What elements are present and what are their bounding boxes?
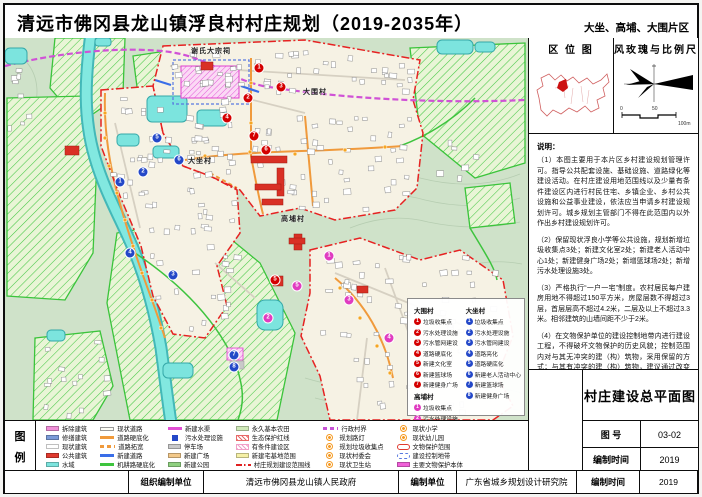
sidebar: 区 位 图 风玫瑰与比例尺: [528, 38, 698, 470]
legend-label: 新建广场: [184, 451, 209, 460]
legend-item: 现状小学: [397, 424, 463, 433]
svg-text:100m: 100m: [678, 121, 691, 127]
village-label-gaobu: 高埔村: [281, 214, 305, 224]
legend-title: 图 例: [5, 421, 36, 471]
map-key-item: 1垃圾收集点: [414, 317, 460, 326]
map-key-number-badge: 7: [466, 381, 473, 388]
map-key-item: 6新建篮球场: [414, 370, 460, 379]
footer-bar: 组织编制单位 清远市佛冈县龙山镇人民政府 编制单位 广东省城乡规划设计研究院 编…: [5, 470, 697, 493]
drawing-name: 村庄建设总平面图: [582, 370, 698, 420]
legend-swatch: [236, 435, 249, 441]
legend-label: 文物保护范围: [413, 442, 451, 451]
map-key-item: 1垃圾收集点: [414, 403, 460, 412]
map-area: 谢氏大宗祠 大围村 大坐村 高埔村 12345671234567812345 大…: [5, 38, 528, 420]
legend-label: 村庄规划建设范围线: [254, 460, 311, 469]
legend-swatch: [326, 434, 333, 441]
legend-label: 现状村委会: [339, 451, 370, 460]
legend-label: 现状道路: [117, 424, 142, 433]
map-key-label: 污水管网建设: [475, 338, 510, 347]
map-key-item: 3污水管网建设: [414, 338, 460, 347]
village-label-dawei: 大围村: [303, 87, 327, 97]
map-key-label: 垃圾收集点: [423, 317, 452, 326]
legend-item: 修缮建筑: [46, 433, 87, 442]
legend-item: 现状卫生站: [323, 460, 383, 469]
map-key-label: 道路亮化: [475, 349, 498, 358]
legend-label: 新建道路: [117, 451, 142, 460]
legend-label: 拆除建筑: [62, 424, 87, 433]
map-marker: 8: [230, 363, 239, 372]
legend-label: 主要文物保护本体: [413, 460, 463, 469]
legend-item: 主要文物保护本体: [397, 460, 463, 469]
title-block-spacer: [529, 370, 583, 470]
legend-item: 新建广场: [168, 451, 223, 460]
map-key-column-1: 大围村1垃圾收集点2污水处理设施3污水管网建设4道路硬底化5新建文化室6新建篮球…: [414, 303, 460, 413]
time-label: 编制时间: [576, 471, 639, 493]
legend-swatch: [236, 426, 249, 431]
map-key-group-title: 大坐村: [466, 305, 521, 315]
legend-label: 现状小学: [413, 424, 438, 433]
legend-label: 公共建筑: [62, 451, 87, 460]
sheet-number-row: 图 号 03-02: [582, 420, 698, 448]
legend-item: 拆除建筑: [46, 424, 87, 433]
map-key-item: 5新建文化室: [414, 359, 460, 368]
legend-swatch: [172, 435, 178, 441]
date-value: 2019: [641, 448, 698, 471]
legend-swatch: [397, 453, 410, 459]
legend-title-char-2: 例: [15, 449, 26, 465]
legend-item: 村庄规划建设范围线: [236, 460, 311, 469]
map-key-label: 污水处理设施: [475, 328, 510, 337]
org-label: 组织编制单位: [128, 471, 203, 493]
legend-label: 现状幼儿园: [413, 433, 444, 442]
map-key-number-badge: 2: [466, 329, 473, 336]
legend-swatch: [46, 444, 59, 449]
legend-item: 文物保护范围: [397, 442, 463, 451]
date-label: 编制时间: [582, 448, 641, 471]
map-marker: 4: [126, 249, 135, 258]
note-paragraph: （4）在文物保护单位的建设控制地带内进行建设工程，不得破坏文物保护的历史风貌；控…: [537, 332, 690, 371]
legend-swatch: [46, 462, 59, 467]
map-key-label: 新建健身广场: [475, 391, 510, 400]
legend-swatch: [397, 462, 410, 467]
legend-item: 规划垃圾收集点: [323, 442, 383, 451]
map-key-group-title: 大围村: [414, 305, 460, 315]
map-marker: 3: [345, 296, 354, 305]
legend-item: 现状村委会: [323, 451, 383, 460]
legend-item: 现状幼儿园: [397, 433, 463, 442]
legend-item: 新建公园: [168, 460, 223, 469]
map-project-key: 大围村1垃圾收集点2污水处理设施3污水管网建设4道路硬底化5新建文化室6新建篮球…: [407, 298, 525, 416]
legend-swatch: [46, 453, 59, 458]
map-key-number-badge: 1: [414, 318, 421, 325]
map-key-item: 7新建篮球场: [466, 380, 521, 389]
map-key-number-badge: 7: [414, 381, 421, 388]
map-key-label: 道路硬底化: [475, 359, 504, 368]
legend-label: 生态保护红线: [252, 433, 290, 442]
legend-item: 永久基本农田: [236, 424, 311, 433]
map-marker: 6: [262, 146, 271, 155]
map-key-label: 新建篮球场: [475, 380, 504, 389]
legend-swatch: [326, 443, 333, 450]
map-key-number-badge: 2: [414, 329, 421, 336]
map-marker: 3: [277, 83, 286, 92]
legend-swatch: [400, 425, 407, 432]
legend-item: 行政村界: [323, 424, 383, 433]
map-marker: 1: [255, 64, 264, 73]
legend-item: 现状建筑: [46, 442, 87, 451]
map-marker: 6: [175, 156, 184, 165]
map-marker: 2: [139, 168, 148, 177]
legend-label: 停车场: [184, 442, 203, 451]
sheet-title: 清远市佛冈县龙山镇浮良村村庄规划（2019-2035年）: [17, 10, 473, 36]
map-key-number-badge: 6: [414, 371, 421, 378]
map-marker: 1: [325, 252, 334, 261]
map-marker: 5: [293, 282, 302, 291]
legend-item: 规划路灯: [323, 433, 383, 442]
map-key-number-badge: 1: [414, 404, 421, 411]
legend-swatch: [236, 444, 249, 450]
map-key-column-2: 大坐村1垃圾收集点2污水处理设施3污水管网建设4道路亮化5道路硬底化6新建老人活…: [466, 303, 521, 413]
unit-label: 编制单位: [398, 471, 456, 493]
windrose-title: 风玫瑰与比例尺: [614, 38, 698, 58]
legend-item: 停车场: [168, 442, 223, 451]
legend-item: 有条件建设区: [236, 442, 311, 451]
map-key-label: 垃圾收集点: [423, 403, 452, 412]
map-marker: 3: [169, 271, 178, 280]
map-key-item: 7新建健身广场: [414, 380, 460, 389]
map-marker: 4: [385, 334, 394, 343]
sidebar-header-row: 区 位 图 风玫瑰与比例尺: [529, 38, 698, 59]
legend-item: 道路硬底化: [100, 433, 155, 442]
map-key-item: 4道路硬底化: [414, 349, 460, 358]
legend-item: 新建道路: [100, 451, 155, 460]
map-key-number-badge: 8: [466, 392, 473, 399]
legend-swatch: [100, 463, 114, 466]
legend-item: 新建水渠: [168, 424, 223, 433]
heritage-label: 谢氏大宗祠: [191, 46, 231, 56]
location-map-graphic: [529, 58, 613, 133]
legend-label: 现状建筑: [62, 442, 87, 451]
map-marker: 4: [223, 114, 232, 123]
legend-swatch: [168, 444, 181, 449]
map-key-item: 3污水管网建设: [466, 338, 521, 347]
legend-label: 道路硬底化: [117, 433, 148, 442]
windrose-graphic: 0 50 100m: [614, 58, 698, 133]
map-key-label: 新建老人活动中心: [475, 370, 521, 379]
map-key-item: 5道路硬底化: [466, 359, 521, 368]
plan-sheet-page: 清远市佛冈县龙山镇浮良村村庄规划（2019-2035年） 大坐、高埔、大围片区: [0, 0, 702, 497]
legend-swatch: [168, 427, 182, 430]
map-marker: 1: [116, 178, 125, 187]
map-key-number-badge: 4: [466, 350, 473, 357]
legend-swatch: [46, 435, 59, 440]
map-key-item: 2污水处理设施: [466, 328, 521, 337]
legend-label: 现状卫生站: [339, 460, 370, 469]
legend-item: 现状道路: [100, 424, 155, 433]
map-marker: 7: [230, 351, 239, 360]
time-value: 2019: [639, 471, 697, 493]
legend-label: 污水处理设施: [185, 433, 223, 442]
legend-item: 水域: [46, 460, 87, 469]
note-paragraph: （2）保留现状浮良小学等公共设施，规划新增垃圾收集点3处；新建文化室2处；新建老…: [537, 236, 690, 278]
legend-swatch: [46, 426, 59, 431]
map-key-number-badge: 3: [414, 339, 421, 346]
note-paragraph: （3）严格执行“一户一宅”制度。农村居民每户建房用地不得超过150平方米，房屋层…: [537, 284, 690, 326]
sidebar-graphics-row: 0 50 100m: [529, 58, 698, 134]
drawing-sheet: 清远市佛冈县龙山镇浮良村村庄规划（2019-2035年） 大坐、高埔、大围片区: [3, 3, 699, 494]
legend-swatch: [236, 453, 249, 458]
legend-swatch: [326, 452, 333, 459]
unit-value: 广东省城乡规划设计研究院: [456, 471, 576, 493]
date-row: 编制时间 2019: [582, 447, 698, 471]
legend-item: 建设控制地带: [397, 451, 463, 460]
map-key-number-badge: 5: [466, 360, 473, 367]
map-key-number-badge: 5: [414, 360, 421, 367]
map-key-number-badge: 3: [466, 339, 473, 346]
org-value: 清远市佛冈县龙山镇人民政府: [203, 471, 398, 493]
map-marker: 2: [244, 94, 253, 103]
map-key-item: 6新建老人活动中心: [466, 370, 521, 379]
legend-item: 新建宅基地范围: [236, 451, 311, 460]
notes-panel: 说明： （1）本图主要用于本片区乡村建设规划管理许可。指导公共配套设施、基础设施…: [529, 133, 698, 370]
map-key-number-badge: 1: [466, 318, 473, 325]
legend-label: 新建宅基地范围: [252, 451, 296, 460]
svg-text:0: 0: [620, 106, 623, 112]
map-marker: 5: [153, 134, 162, 143]
map-marker: 7: [250, 132, 259, 141]
legend-label: 规划路灯: [339, 433, 364, 442]
map-key-item: 2污水处理设施: [414, 328, 460, 337]
legend-label: 机耕路硬底化: [117, 460, 155, 469]
legend-label: 永久基本农田: [252, 424, 290, 433]
notes-heading: 说明：: [537, 141, 690, 152]
note-paragraph: （1）本图主要用于本片区乡村建设规划管理许可。指导公共配套设施、基础设施、道路绿…: [537, 156, 690, 230]
map-marker: 5: [271, 276, 280, 285]
legend-swatch: [400, 434, 407, 441]
map-key-number-badge: 4: [414, 350, 421, 357]
legend-swatch: [397, 444, 410, 450]
map-key-label: 新建健身广场: [423, 380, 458, 389]
legend-swatch: [100, 445, 115, 448]
legend-grid: 拆除建筑修缮建筑现状建筑公共建筑水域现状道路道路硬底化道路拓宽新建道路机耕路硬底…: [36, 421, 528, 471]
map-key-label: 垃圾收集点: [475, 317, 504, 326]
map-key-item: 1垃圾收集点: [466, 317, 521, 326]
legend-label: 新建水渠: [185, 424, 210, 433]
sheet-number-label: 图 号: [582, 421, 641, 448]
legend-bar: 图 例 拆除建筑修缮建筑现状建筑公共建筑水域现状道路道路硬底化道路拓宽新建道路机…: [5, 420, 528, 471]
map-key-group-title: 高埔村: [414, 391, 460, 401]
legend-item: 机耕路硬底化: [100, 460, 155, 469]
map-key-number-badge: 6: [466, 371, 473, 378]
map-key-label: 污水处理设施: [423, 328, 458, 337]
legend-swatch: [100, 454, 114, 457]
map-key-label: 新建文化室: [423, 359, 452, 368]
title-bar: 清远市佛冈县龙山镇浮良村村庄规划（2019-2035年） 大坐、高埔、大围片区: [5, 5, 697, 40]
legend-swatch: [323, 427, 338, 430]
title-block: 村庄建设总平面图 图 号 03-02 编制时间 2019: [529, 370, 698, 470]
legend-label: 有条件建设区: [252, 442, 290, 451]
legend-item: 公共建筑: [46, 451, 87, 460]
legend-label: 道路拓宽: [118, 442, 143, 451]
legend-label: 建设控制地带: [413, 451, 451, 460]
village-label-dazuo: 大坐村: [188, 156, 212, 166]
legend-swatch: [100, 427, 114, 431]
legend-item: 道路拓宽: [100, 442, 155, 451]
map-marker: 2: [264, 314, 273, 323]
legend-swatch: [168, 453, 181, 458]
map-key-label: 道路硬底化: [423, 349, 452, 358]
legend-item: 污水处理设施: [168, 433, 223, 442]
area-label: 大坐、高埔、大围片区: [584, 20, 689, 35]
legend-title-char-1: 图: [15, 428, 26, 444]
map-key-item: 8新建健身广场: [466, 391, 521, 400]
legend-label: 新建公园: [184, 460, 209, 469]
location-map-title: 区 位 图: [529, 38, 614, 58]
map-key-label: 新建篮球场: [423, 370, 452, 379]
sheet-number-value: 03-02: [641, 421, 698, 448]
legend-label: 水域: [62, 460, 75, 469]
legend-swatch: [100, 436, 114, 439]
legend-label: 规划垃圾收集点: [339, 442, 383, 451]
notes-list: （1）本图主要用于本片区乡村建设规划管理许可。指导公共配套设施、基础设施、道路绿…: [537, 156, 690, 370]
legend-swatch: [168, 462, 181, 467]
legend-item: 生态保护红线: [236, 433, 311, 442]
legend-swatch: [326, 461, 333, 468]
legend-label: 修缮建筑: [62, 433, 87, 442]
map-key-item: 4道路亮化: [466, 349, 521, 358]
windrose-cell: 0 50 100m: [614, 58, 698, 133]
legend-label: 行政村界: [341, 424, 366, 433]
svg-text:50: 50: [652, 106, 658, 112]
location-map-cell: [529, 58, 614, 133]
legend-swatch: [236, 464, 251, 466]
map-key-label: 污水管网建设: [423, 338, 458, 347]
